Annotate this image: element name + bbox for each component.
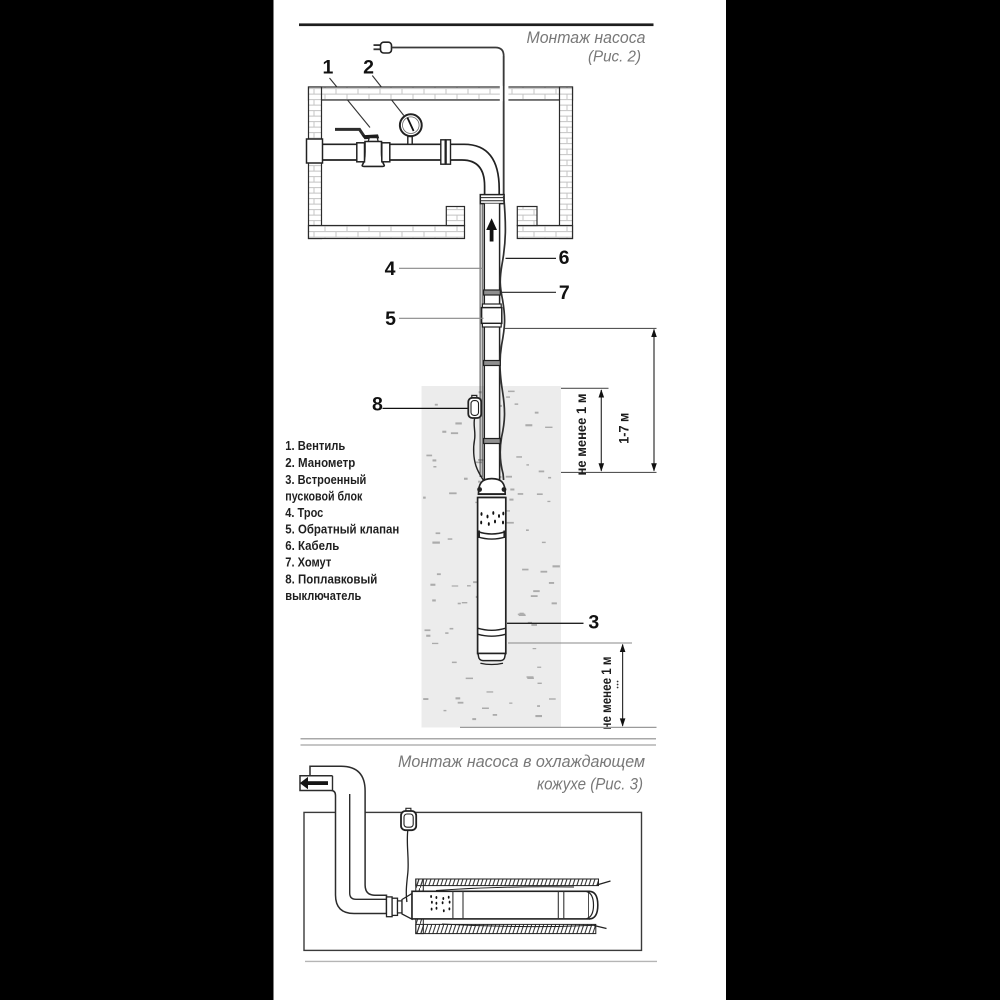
svg-text:7. Хомут: 7. Хомут	[285, 555, 331, 570]
svg-text:8. Поплавковый: 8. Поплавковый	[285, 571, 377, 586]
svg-text:(Рис. 2): (Рис. 2)	[588, 49, 641, 66]
svg-text:пусковой блок: пусковой блок	[285, 489, 362, 504]
svg-text:6: 6	[559, 247, 570, 269]
svg-text:3: 3	[588, 611, 599, 633]
svg-text:1: 1	[322, 57, 333, 79]
svg-text:6. Кабель: 6. Кабель	[285, 538, 339, 553]
svg-text:4: 4	[385, 258, 396, 280]
svg-text:2. Манометр: 2. Манометр	[285, 455, 355, 470]
svg-text:2: 2	[363, 57, 374, 79]
svg-text:3. Встроенный: 3. Встроенный	[285, 472, 366, 487]
svg-text:7: 7	[559, 282, 570, 304]
svg-text:Монтаж насоса в охлаждающем: Монтаж насоса в охлаждающем	[398, 753, 645, 771]
svg-text:8: 8	[372, 393, 383, 415]
svg-text:5: 5	[385, 308, 396, 330]
svg-text:не менее 1 м: не менее 1 м	[598, 657, 614, 730]
svg-text:не менее 1 м: не менее 1 м	[573, 394, 589, 476]
svg-text:1. Вентиль: 1. Вентиль	[285, 438, 345, 453]
svg-text:5. Обратный клапан: 5. Обратный клапан	[285, 522, 399, 537]
svg-text:4. Трос: 4. Трос	[285, 505, 323, 520]
svg-text:выключатель: выключатель	[285, 588, 361, 603]
svg-text:Монтаж насоса: Монтаж насоса	[527, 29, 646, 47]
svg-text:кожухе (Рис. 3): кожухе (Рис. 3)	[537, 776, 643, 794]
svg-text:1-7 м: 1-7 м	[616, 413, 632, 444]
